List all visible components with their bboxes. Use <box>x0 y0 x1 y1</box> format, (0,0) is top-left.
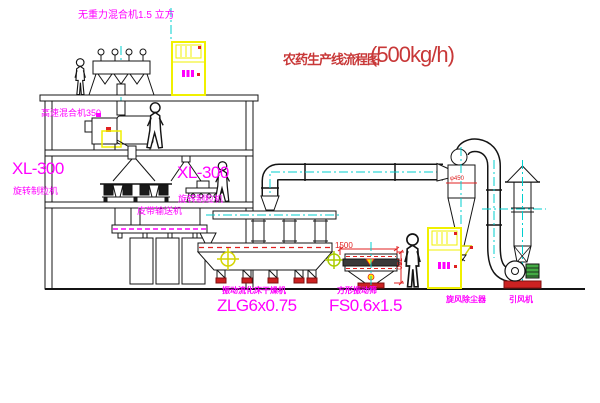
dryer-body <box>198 252 332 270</box>
top-platform <box>40 95 258 101</box>
label-fan: 引风机 <box>509 296 533 304</box>
label-sieve-name: 方形振动筛 <box>337 287 377 295</box>
worker-ground <box>405 234 420 287</box>
induced-draft-fan <box>504 261 541 288</box>
process-flow-drawing: 农药生产线流程图 (500kg/h) 无重力混合机1.5 立方 高速混合机350… <box>0 0 600 403</box>
label-belt-conveyor: 皮带输送机 <box>137 207 182 216</box>
label-granulator2-name: 旋转制粒机 <box>178 195 223 204</box>
fan-motor <box>526 264 539 278</box>
label-high-speed-mixer: 高速混合机350 <box>41 109 101 118</box>
label-dryer-model: ZLG6x0.75 <box>217 297 297 314</box>
control-cabinet-2 <box>428 228 461 288</box>
diagram-capacity: (500kg/h) <box>370 44 454 66</box>
dryer-spring-mounts <box>216 270 317 283</box>
worker-roof <box>75 59 85 95</box>
cyclone-outlet <box>451 149 467 165</box>
exhaust-duct <box>261 163 462 210</box>
dim-sieve-length: 1500 <box>335 242 353 250</box>
dim-cyclone-diameter: φ450 <box>450 176 464 182</box>
label-top-mixer: 无重力混合机1.5 立方 <box>78 11 175 21</box>
label-granulator2-model: XL-300 <box>177 164 229 181</box>
diagram-title: 农药生产线流程图 <box>283 53 379 66</box>
label-granulator1-model: XL-300 <box>12 160 64 177</box>
floor-2 <box>45 150 253 156</box>
label-granulator1-name: 旋转制粒机 <box>13 187 58 196</box>
label-dryer-name: 振动流化床干燥机 <box>222 287 286 295</box>
worker-floor2 <box>147 103 163 148</box>
dim-sieve-height: 750 <box>395 258 402 270</box>
label-sieve-model: FS0.6x1.5 <box>329 297 402 314</box>
control-cabinet-1 <box>171 8 205 95</box>
label-cyclone: 旋风除尘器 <box>446 296 486 304</box>
fluid-bed-dryer <box>198 211 343 283</box>
